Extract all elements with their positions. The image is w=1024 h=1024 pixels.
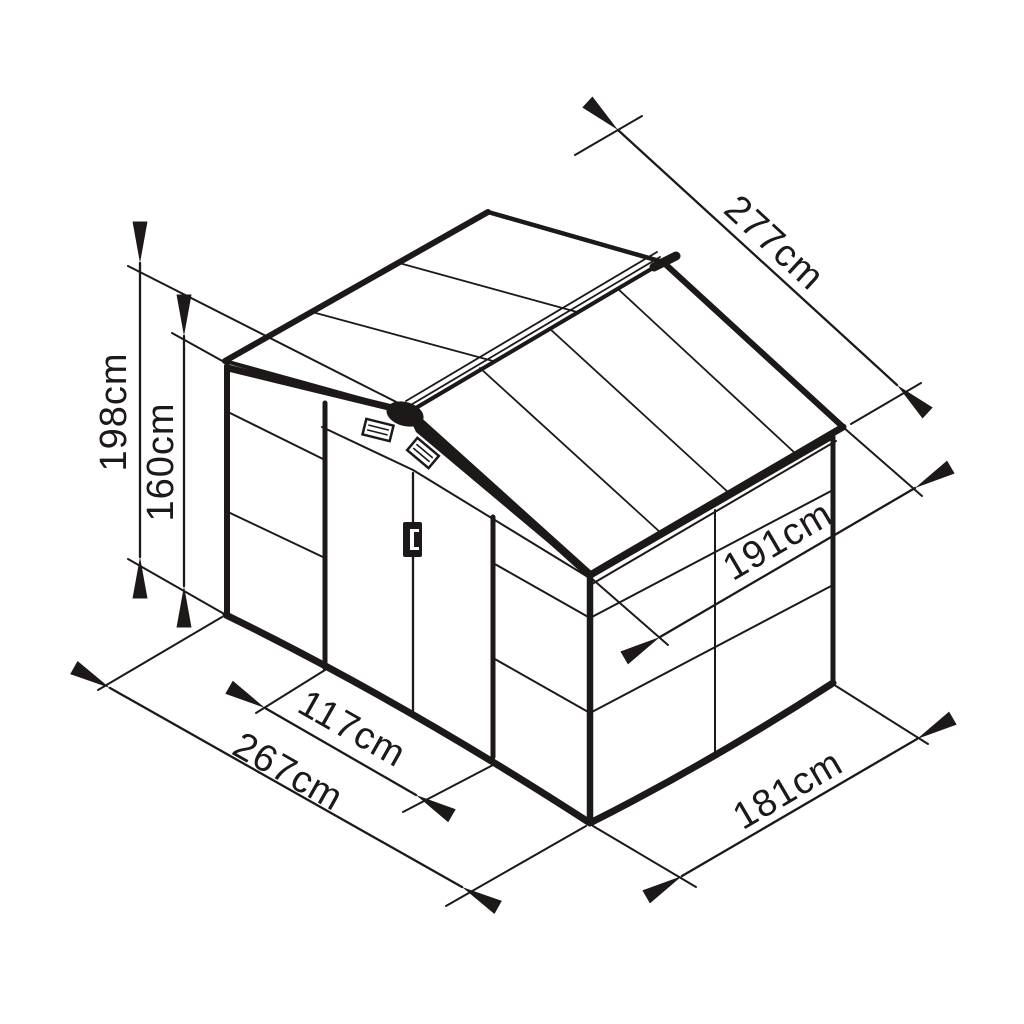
dimension-label-roof-length: 277cm: [716, 187, 832, 298]
shed-dimension-diagram: 198cm 160cm 277cm 191cm 117cm: [0, 0, 1024, 1024]
dimension-wall-height: 160cm: [140, 333, 226, 586]
dimension-label-wall-height: 160cm: [140, 402, 182, 521]
dimension-label-ridge-height: 198cm: [93, 352, 135, 471]
door-handle: [403, 522, 422, 557]
drawing-canvas: 198cm 160cm 277cm 191cm 117cm: [0, 0, 1024, 1024]
